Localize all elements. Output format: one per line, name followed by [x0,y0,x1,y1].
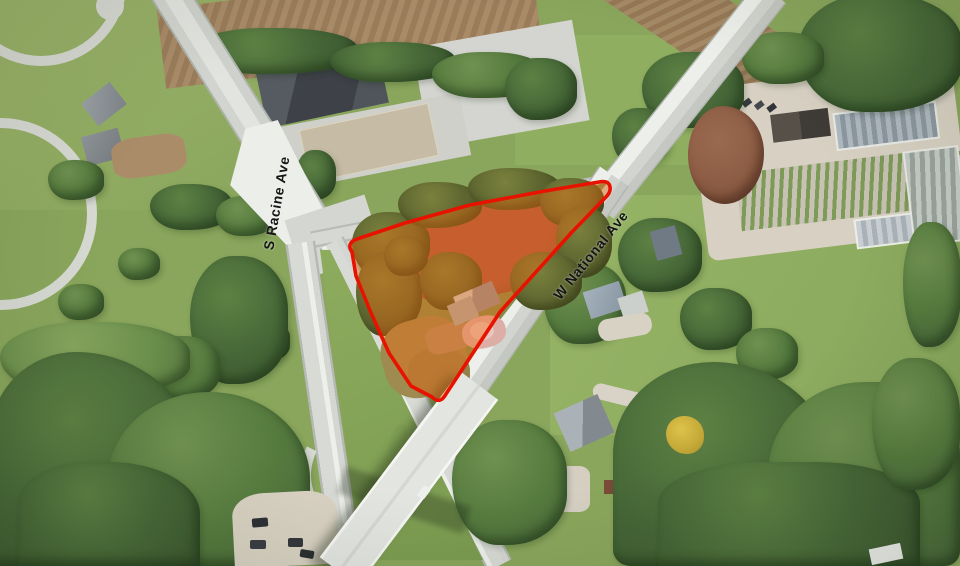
parcel-tree-cluster [384,236,428,276]
tree [48,160,104,200]
parked-car [754,100,765,110]
parked-car [288,538,303,547]
garden-building-roof [770,108,831,143]
tree-strip-right-edge [903,222,960,347]
tree-cluster [505,58,577,120]
tree-cluster-by-bridge [452,420,567,545]
aerial-map: S Racine Ave W National Ave [0,0,960,566]
tree [118,248,160,280]
yellow-tree [666,416,704,454]
forest-right-edge [872,358,960,490]
tree [58,284,104,320]
parked-car [766,103,777,113]
parked-car [252,517,269,527]
parked-car [250,540,266,549]
forest-bottom-left [18,462,200,566]
parcel-dirt-pink-core [470,322,494,340]
